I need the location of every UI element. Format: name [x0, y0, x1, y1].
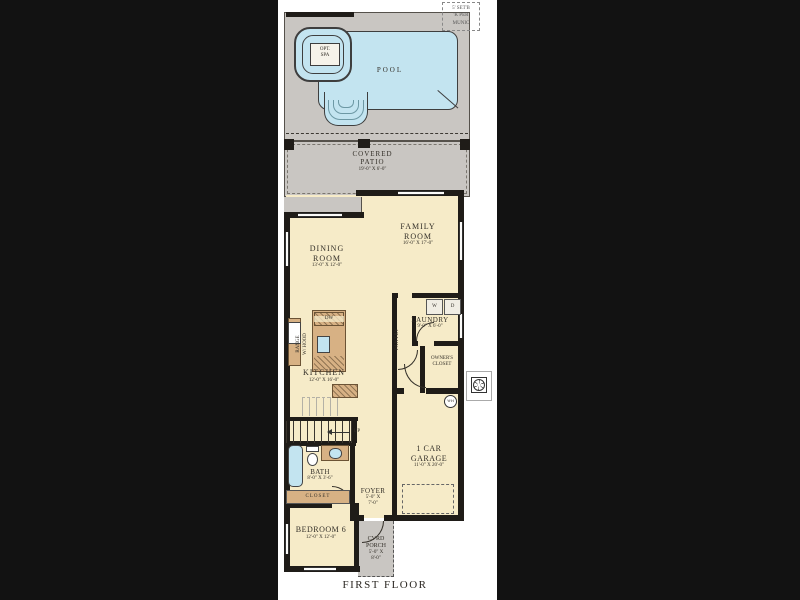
bath-dims: 8'-0" X 3'-6": [295, 476, 345, 482]
garage-label: 1 CAR GARAGE 11'-0" X 20'-0": [398, 444, 460, 469]
family-right-window: [459, 222, 463, 260]
dining-left-window: [285, 232, 289, 266]
owners-closet-name2: CLOSET: [424, 362, 460, 368]
wall-laundry-bottom: [434, 341, 462, 346]
bath-label: BATH 8'-0" X 3'-6": [295, 468, 345, 482]
bath-name: BATH: [295, 468, 345, 476]
closet-label: CLOSET: [286, 494, 350, 500]
island-sink: [317, 336, 330, 353]
porch-dims2: 8'-0": [359, 556, 393, 562]
cvrd-porch-label: CVRD PORCH 5'-0" X 8'-0": [359, 536, 393, 562]
patio-corner-stub: [358, 139, 370, 148]
deck-top-wall: [286, 12, 354, 17]
setback-note: 5' SET'B 'K PER MUNIC: [442, 5, 480, 27]
setback-note-line1: 5' SET'B: [442, 5, 480, 12]
bedroom-bottom-window: [304, 567, 336, 571]
dryer-label: D: [444, 304, 461, 310]
foyer-name: FOYER: [354, 487, 392, 495]
porch-name2: PORCH: [359, 543, 393, 550]
stairs-up-arrowhead: [327, 429, 332, 435]
garage-door-zone: [402, 484, 454, 514]
bedroom6-name: BEDROOM 6: [288, 525, 354, 535]
covered-patio-dims: 19'-0" X 6'-0": [300, 167, 445, 173]
family-dims: 16'-0" X 17'-0": [380, 241, 456, 247]
patio-corner-stub: [284, 139, 294, 150]
family-name1: FAMILY: [380, 222, 456, 232]
pool-step-arc: [338, 100, 354, 108]
family-name2: ROOM: [380, 232, 456, 242]
wall-garage-left: [392, 388, 397, 521]
setback-note-line2: 'K PER: [442, 12, 480, 19]
range-hood-label: RANGE W/ HOOD: [296, 314, 310, 374]
plan-caption: FIRST FLOOR: [325, 579, 445, 592]
washer-label: W: [426, 304, 443, 310]
foyer-dims2: 7'-0": [354, 501, 392, 507]
covered-patio-label: COVERED PATIO 19'-0" X 6'-0": [300, 150, 445, 173]
pool-seam-patch: [327, 89, 365, 95]
spa-label: OPT. SPA: [310, 47, 340, 59]
kitchen-label: KITCHEN 12'-0" X 16'-0": [288, 368, 360, 384]
laundry-label: LAUNDRY 9'-0" X 6'-0": [400, 316, 460, 330]
toilet-bowl: [307, 453, 318, 466]
setback-note-line3: MUNIC: [442, 20, 480, 27]
laundry-dims: 9'-0" X 6'-0": [400, 324, 460, 330]
deck-boundary-dashed-line: [286, 133, 468, 134]
dining-patio-door: [298, 213, 342, 217]
floorplan-page: { "meta": { "caption": "FIRST FLOOR" }, …: [0, 0, 800, 600]
wall-garage-bottom: [392, 515, 464, 521]
wall-left-exterior: [284, 212, 290, 572]
laundry-name: LAUNDRY: [400, 316, 460, 324]
family-room-label: FAMILY ROOM 16'-0" X 17'-0": [380, 222, 456, 247]
bedroom6-label: BEDROOM 6 12'-0" X 12'-0": [288, 525, 354, 541]
covered-patio-name2: PATIO: [300, 158, 445, 166]
wall-family-laundry: [412, 293, 462, 298]
range-label-line2: W/ HOOD: [303, 314, 310, 374]
spa-label-line2: SPA: [310, 53, 340, 59]
dining-dims: 13'-0" X 12'-0": [292, 263, 362, 269]
wall-foyer-front: [384, 515, 396, 521]
kitchen-cabinet: [332, 384, 358, 398]
ac-fan-icon: [473, 379, 485, 391]
stairs-up-arrow: [330, 432, 350, 433]
stairs-upper-flight-dashed: [302, 397, 340, 416]
porch-name1: CVRD: [359, 536, 393, 543]
dining-name1: DINING: [292, 244, 362, 254]
bath-sink: [329, 448, 342, 459]
toilet-tank: [306, 446, 319, 452]
kitchen-name: KITCHEN: [288, 368, 360, 378]
water-heater-label: WH: [445, 400, 455, 405]
foyer-label: FOYER 5'-0" X 7'-0": [354, 487, 392, 507]
garage-dims: 11'-0" X 20'-0": [398, 463, 460, 469]
wall-laundry-bottom: [412, 341, 418, 346]
garage-name2: GARAGE: [398, 454, 460, 464]
dishwasher-label: DW: [314, 316, 344, 322]
pool-label: POOL: [360, 66, 420, 74]
covered-patio-name1: COVERED: [300, 150, 445, 158]
kitchen-dims: 12'-0" X 16'-0": [288, 378, 360, 384]
garage-name1: 1 CAR: [398, 444, 460, 454]
patio-corner-stub: [460, 139, 470, 150]
family-top-window: [398, 191, 444, 195]
stairs-up-label: UP: [350, 429, 364, 435]
bedroom6-dims: 12'-0" X 12'-0": [288, 535, 354, 541]
wall-garage-top: [426, 388, 464, 394]
dining-room-label: DINING ROOM 13'-0" X 12'-0": [292, 244, 362, 269]
dining-name2: ROOM: [292, 254, 362, 264]
owners-closet-label: OWNER'S CLOSET: [424, 356, 460, 368]
pantry-label: PANTRY: [395, 321, 405, 357]
